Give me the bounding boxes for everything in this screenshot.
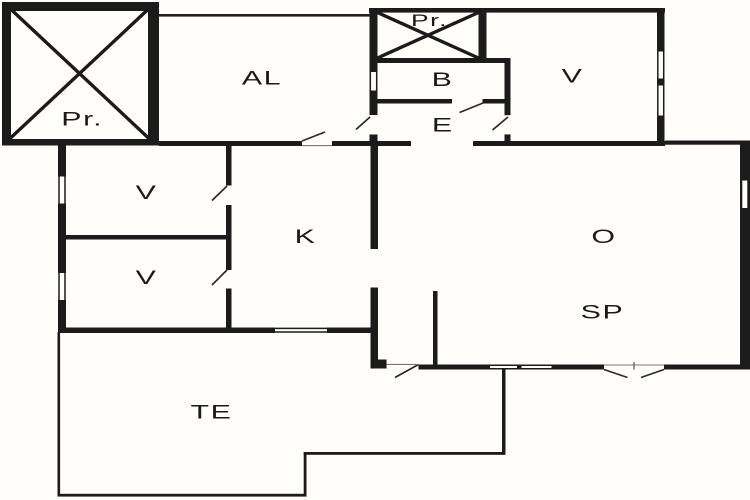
svg-text:K: K [295,227,317,248]
svg-text:E: E [432,115,454,136]
svg-text:V: V [136,268,158,289]
svg-text:TE: TE [190,402,232,423]
svg-text:V: V [136,183,158,204]
svg-text:B: B [432,70,454,91]
svg-text:O: O [591,227,616,248]
svg-text:Pr.: Pr. [61,109,103,130]
svg-text:V: V [562,66,584,87]
svg-text:SP: SP [581,302,625,323]
svg-text:Pr.: Pr. [411,11,448,30]
svg-text:AL: AL [242,68,282,89]
